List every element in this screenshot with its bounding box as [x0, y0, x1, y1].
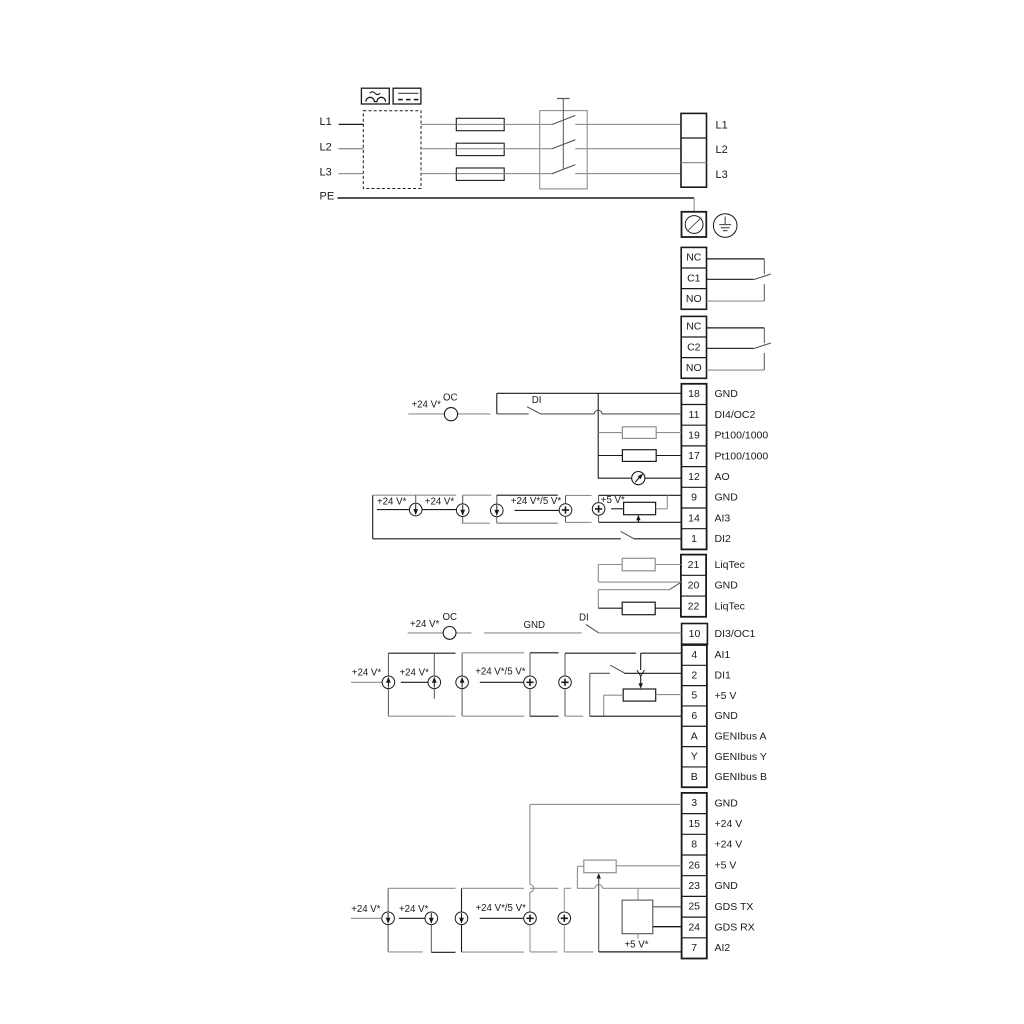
svg-text:AI1: AI1 [715, 649, 731, 661]
svg-text:L2: L2 [320, 142, 332, 154]
svg-text:OC: OC [443, 612, 458, 623]
svg-text:OC: OC [443, 393, 458, 404]
svg-text:+24 V*: +24 V* [412, 400, 442, 411]
svg-text:26: 26 [688, 859, 700, 871]
svg-text:+24 V: +24 V [715, 839, 743, 851]
svg-text:DI: DI [532, 395, 542, 406]
svg-text:NC: NC [686, 252, 702, 264]
svg-text:GND: GND [715, 797, 739, 809]
svg-text:L3: L3 [716, 169, 728, 181]
svg-text:GND: GND [715, 492, 739, 504]
svg-text:23: 23 [688, 880, 700, 892]
svg-text:AI3: AI3 [715, 512, 731, 524]
svg-text:9: 9 [691, 492, 697, 504]
svg-text:+5 V*: +5 V* [625, 939, 649, 950]
svg-text:C2: C2 [687, 341, 701, 353]
svg-text:PE: PE [320, 191, 335, 203]
svg-text:10: 10 [689, 628, 701, 640]
svg-text:2: 2 [691, 669, 697, 681]
svg-text:4: 4 [691, 649, 697, 661]
svg-text:+24 V*/5 V*: +24 V*/5 V* [511, 496, 562, 507]
svg-text:+24 V*/5 V*: +24 V*/5 V* [476, 903, 527, 914]
svg-text:GND: GND [715, 710, 739, 722]
svg-text:B: B [691, 771, 698, 783]
svg-text:GND: GND [524, 620, 546, 631]
svg-text:17: 17 [688, 450, 700, 462]
svg-text:3: 3 [691, 797, 697, 809]
svg-text:GND: GND [715, 580, 739, 592]
svg-text:+5 V*: +5 V* [601, 495, 625, 506]
svg-text:+24 V*: +24 V* [352, 668, 382, 679]
svg-text:GENIbus B: GENIbus B [715, 771, 768, 783]
svg-text:NO: NO [686, 293, 702, 305]
svg-text:L3: L3 [320, 166, 332, 178]
svg-text:25: 25 [688, 901, 700, 913]
svg-text:GENIbus A: GENIbus A [715, 730, 767, 742]
svg-text:+5 V: +5 V [715, 859, 737, 871]
svg-text:14: 14 [688, 512, 700, 524]
svg-text:11: 11 [689, 409, 700, 421]
svg-text:8: 8 [691, 839, 697, 851]
svg-text:LiqTec: LiqTec [715, 559, 745, 571]
svg-text:21: 21 [688, 559, 700, 571]
svg-text:+24 V*: +24 V* [377, 497, 407, 508]
svg-text:GENIbus Y: GENIbus Y [715, 751, 767, 763]
svg-text:12: 12 [688, 471, 700, 483]
svg-text:DI4/OC2: DI4/OC2 [715, 409, 756, 421]
svg-text:+5 V: +5 V [715, 690, 737, 702]
svg-text:19: 19 [688, 429, 700, 441]
svg-text:GND: GND [715, 388, 739, 400]
svg-text:Pt100/1000: Pt100/1000 [715, 430, 769, 442]
svg-text:24: 24 [688, 921, 700, 933]
svg-text:NO: NO [686, 362, 702, 374]
svg-text:L1: L1 [320, 116, 332, 128]
svg-text:+24 V*/5 V*: +24 V*/5 V* [475, 667, 526, 678]
svg-text:22: 22 [688, 600, 700, 612]
svg-text:AO: AO [715, 471, 730, 483]
svg-text:Y: Y [691, 751, 698, 763]
svg-text:1: 1 [691, 533, 697, 545]
svg-text:L2: L2 [716, 144, 728, 156]
svg-text:DI2: DI2 [715, 533, 732, 545]
svg-text:+24 V: +24 V [715, 818, 743, 830]
svg-text:GND: GND [715, 880, 739, 892]
svg-text:AI2: AI2 [715, 942, 731, 954]
svg-text:DI3/OC1: DI3/OC1 [715, 628, 756, 640]
svg-text:7: 7 [691, 942, 697, 954]
svg-text:LiqTec: LiqTec [715, 600, 745, 612]
svg-text:20: 20 [688, 580, 700, 592]
svg-text:L1: L1 [716, 119, 728, 131]
svg-text:+24 V*: +24 V* [399, 904, 429, 915]
svg-text:DI1: DI1 [715, 669, 732, 681]
svg-text:5: 5 [691, 690, 697, 702]
svg-text:NC: NC [686, 321, 702, 333]
svg-text:GDS RX: GDS RX [715, 921, 755, 933]
svg-text:GDS TX: GDS TX [715, 901, 754, 913]
svg-text:15: 15 [688, 818, 700, 830]
svg-text:Pt100/1000: Pt100/1000 [715, 450, 769, 462]
svg-text:6: 6 [691, 710, 697, 722]
svg-text:+24 V*: +24 V* [351, 904, 381, 915]
svg-text:A: A [691, 730, 698, 742]
svg-text:+24 V*: +24 V* [410, 619, 440, 630]
svg-text:C1: C1 [687, 272, 701, 284]
svg-text:+24 V*: +24 V* [425, 497, 455, 508]
svg-text:DI: DI [579, 613, 589, 624]
svg-text:18: 18 [688, 388, 700, 400]
svg-text:+24 V*: +24 V* [400, 668, 430, 679]
